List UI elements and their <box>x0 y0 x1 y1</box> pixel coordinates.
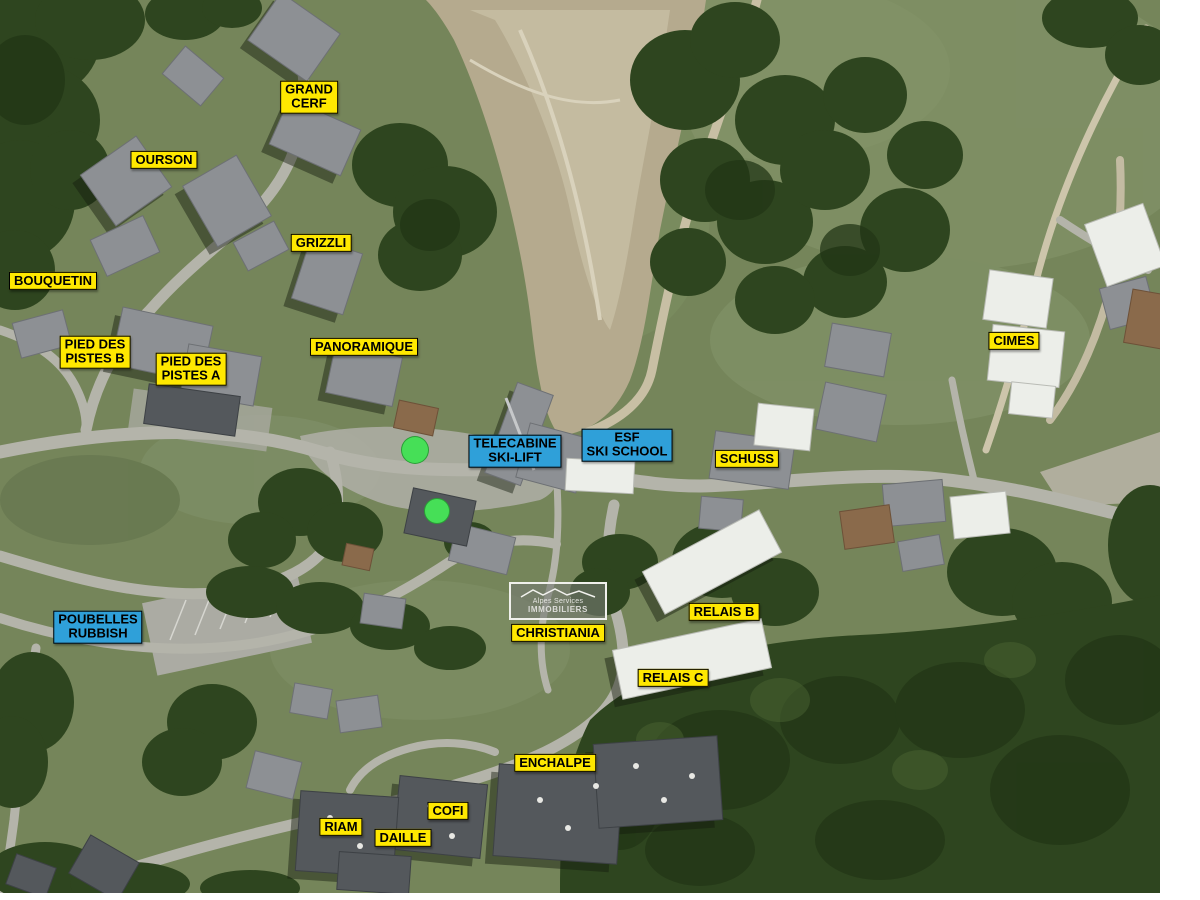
green-dot-upper <box>401 436 429 464</box>
green-dot-lower <box>424 498 450 524</box>
map-label-schuss: SCHUSS <box>715 450 779 468</box>
map-label-riam: RIAM <box>319 818 362 836</box>
map-label-bouquetin: BOUQUETIN <box>9 272 97 290</box>
map-label-relais-c: RELAIS C <box>638 669 709 687</box>
aerial-map-image: Alpes Services IMMOBILIERS GRANDCERFOURS… <box>0 0 1200 900</box>
map-label-cofi: COFI <box>427 802 468 820</box>
map-label-daille: DAILLE <box>375 829 432 847</box>
map-label-pied-des-pistes-a: PIED DESPISTES A <box>156 353 227 386</box>
map-label-panoramique: PANORAMIQUE <box>310 338 418 356</box>
map-label-cimes: CIMES <box>988 332 1039 350</box>
agency-logo-subtitle: IMMOBILIERS <box>528 606 588 615</box>
mountain-logo-icon <box>519 587 597 598</box>
map-label-ourson: OURSON <box>130 151 197 169</box>
map-label-grizzli: GRIZZLI <box>291 234 352 252</box>
labels-overlay: Alpes Services IMMOBILIERS GRANDCERFOURS… <box>0 0 1200 900</box>
map-label-enchalpe: ENCHALPE <box>514 754 596 772</box>
map-label-telecabine-ski-lift: TELECABINESKI-LIFT <box>468 435 561 468</box>
map-label-pied-des-pistes-b: PIED DESPISTES B <box>60 336 131 369</box>
map-label-christiania: CHRISTIANIA <box>511 624 605 642</box>
map-label-poubelles-rubbish: POUBELLESRUBBISH <box>53 611 142 644</box>
agency-logo: Alpes Services IMMOBILIERS <box>509 582 607 620</box>
map-label-grand-cerf: GRANDCERF <box>280 81 338 114</box>
map-label-esf-ski-school: ESFSKI SCHOOL <box>582 429 673 462</box>
map-label-relais-b: RELAIS B <box>689 603 760 621</box>
